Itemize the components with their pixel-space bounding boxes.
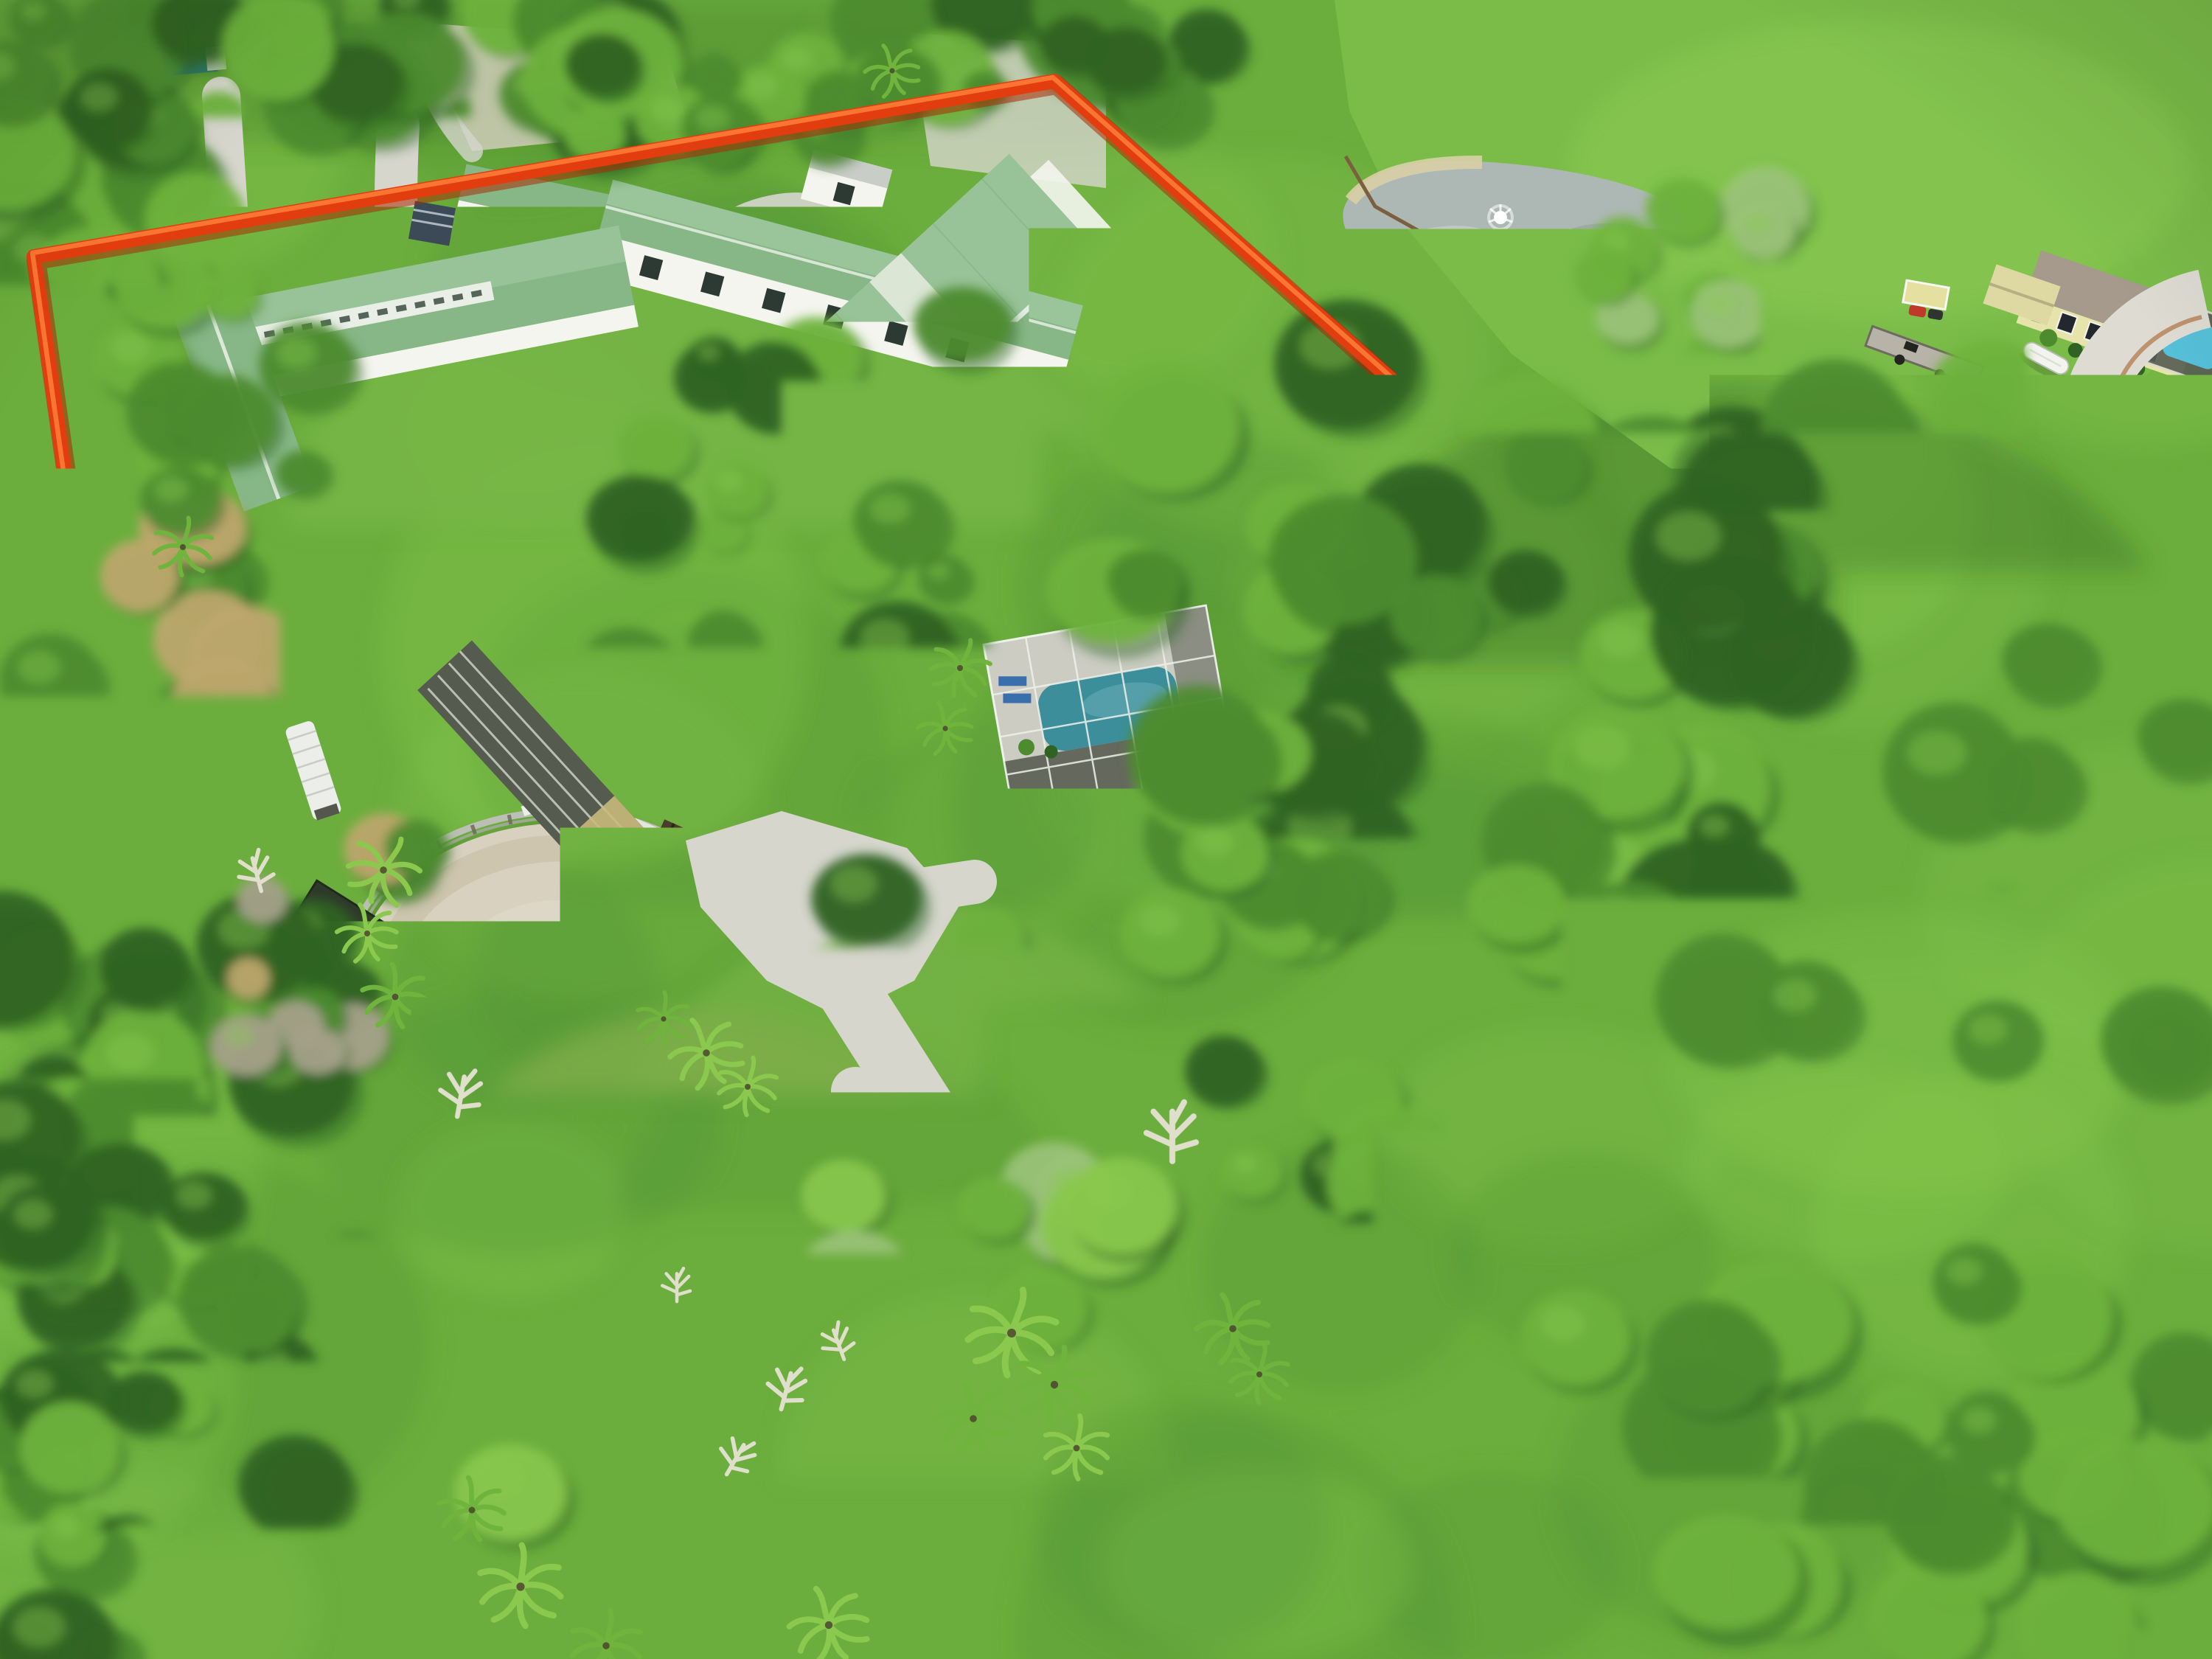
photo-vignette <box>0 0 2212 1659</box>
aerial-photo <box>0 0 2212 1659</box>
